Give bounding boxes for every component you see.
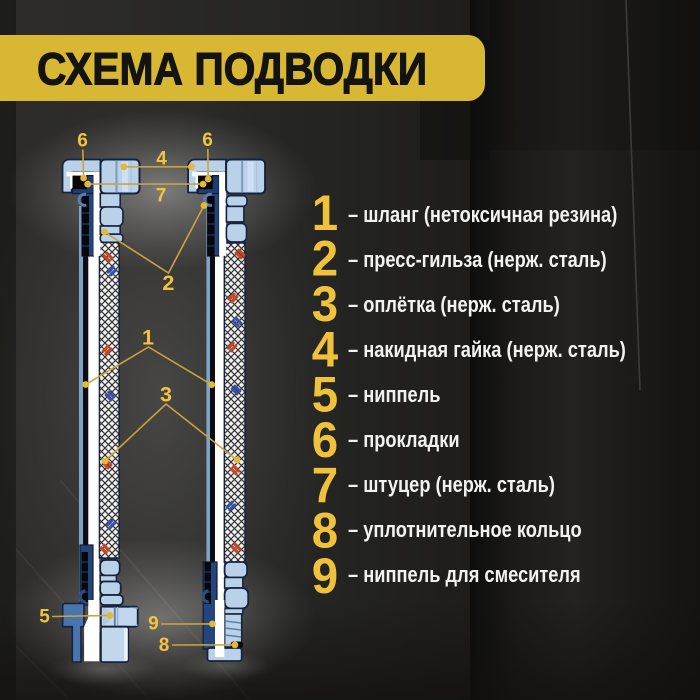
svg-text:– оплётка (нерж. сталь): – оплётка (нерж. сталь): [348, 294, 560, 318]
svg-text:– штуцер (нерж. сталь): – штуцер (нерж. сталь): [348, 474, 555, 498]
svg-text:– ниппель: – ниппель: [348, 384, 440, 408]
svg-text:6: 6: [202, 130, 213, 151]
svg-text:6: 6: [77, 131, 88, 152]
svg-text:– уплотнительное кольцо: – уплотнительное кольцо: [348, 519, 582, 543]
svg-text:5: 5: [39, 607, 50, 628]
svg-text:– ниппель для смесителя: – ниппель для смесителя: [348, 564, 581, 588]
svg-text:9: 9: [312, 549, 338, 604]
svg-text:– накидная гайка (нерж. сталь): – накидная гайка (нерж. сталь): [348, 339, 626, 363]
svg-text:– шланг (нетоксичная резина): – шланг (нетоксичная резина): [348, 204, 617, 228]
svg-text:7: 7: [156, 186, 167, 207]
svg-text:3: 3: [160, 383, 172, 407]
svg-text:СХЕМА ПОДВОДКИ: СХЕМА ПОДВОДКИ: [37, 44, 427, 95]
svg-text:2: 2: [162, 271, 174, 295]
svg-text:8: 8: [159, 635, 170, 656]
svg-text:1: 1: [142, 326, 154, 350]
svg-text:– прокладки: – прокладки: [348, 429, 460, 453]
svg-text:– пресс-гильза (нерж. сталь): – пресс-гильза (нерж. сталь): [348, 249, 607, 273]
svg-text:9: 9: [148, 614, 159, 635]
